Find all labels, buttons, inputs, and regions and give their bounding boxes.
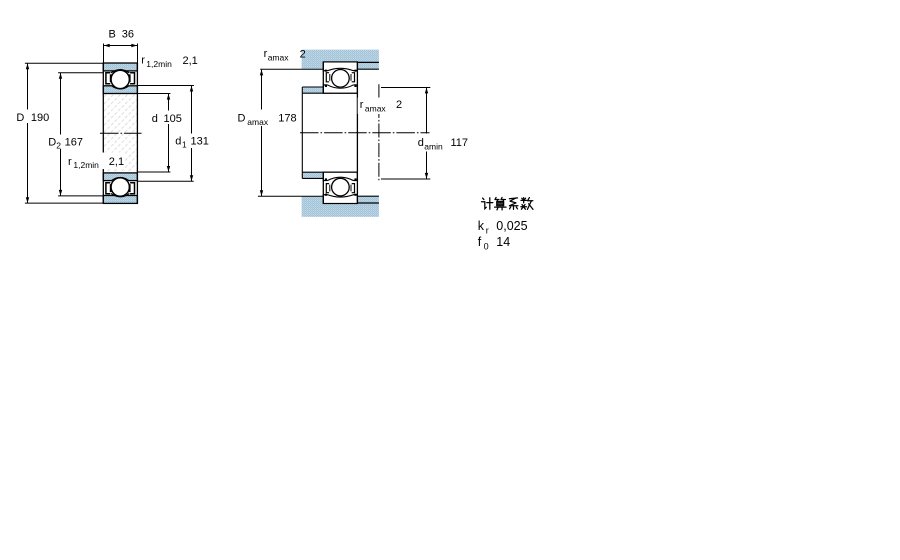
- svg-text:D: D: [238, 113, 246, 125]
- svg-text:amax: amax: [268, 52, 290, 62]
- svg-text:amin: amin: [424, 141, 443, 151]
- svg-text:f: f: [478, 235, 482, 249]
- svg-text:2,1: 2,1: [183, 55, 198, 67]
- svg-text:amax: amax: [365, 103, 387, 113]
- svg-text:1,2min: 1,2min: [146, 59, 172, 69]
- svg-text:105: 105: [164, 113, 182, 125]
- svg-text:36: 36: [122, 29, 134, 41]
- svg-text:D: D: [48, 137, 56, 149]
- svg-text:1,2min: 1,2min: [73, 160, 99, 170]
- svg-text:0,025: 0,025: [496, 219, 527, 233]
- svg-text:14: 14: [496, 235, 510, 249]
- svg-text:B: B: [109, 29, 116, 41]
- svg-text:2: 2: [56, 141, 61, 151]
- svg-text:r: r: [360, 99, 364, 111]
- svg-text:131: 131: [191, 136, 209, 148]
- svg-text:r: r: [68, 156, 72, 168]
- svg-text:r: r: [486, 226, 489, 236]
- svg-text:178: 178: [278, 113, 296, 125]
- svg-text:167: 167: [65, 137, 83, 149]
- svg-text:2,1: 2,1: [109, 156, 124, 168]
- svg-text:D: D: [16, 112, 24, 124]
- svg-text:2: 2: [396, 99, 402, 111]
- svg-text:r: r: [141, 55, 145, 67]
- svg-text:amax: amax: [247, 117, 269, 127]
- svg-text:117: 117: [451, 137, 469, 149]
- svg-text:d: d: [152, 113, 158, 125]
- svg-text:190: 190: [31, 112, 49, 124]
- svg-text:1: 1: [182, 140, 187, 150]
- svg-text:0: 0: [484, 241, 489, 251]
- svg-text:d: d: [175, 136, 181, 148]
- svg-text:2: 2: [300, 49, 306, 61]
- svg-text:k: k: [478, 219, 485, 233]
- svg-text:d: d: [418, 137, 424, 149]
